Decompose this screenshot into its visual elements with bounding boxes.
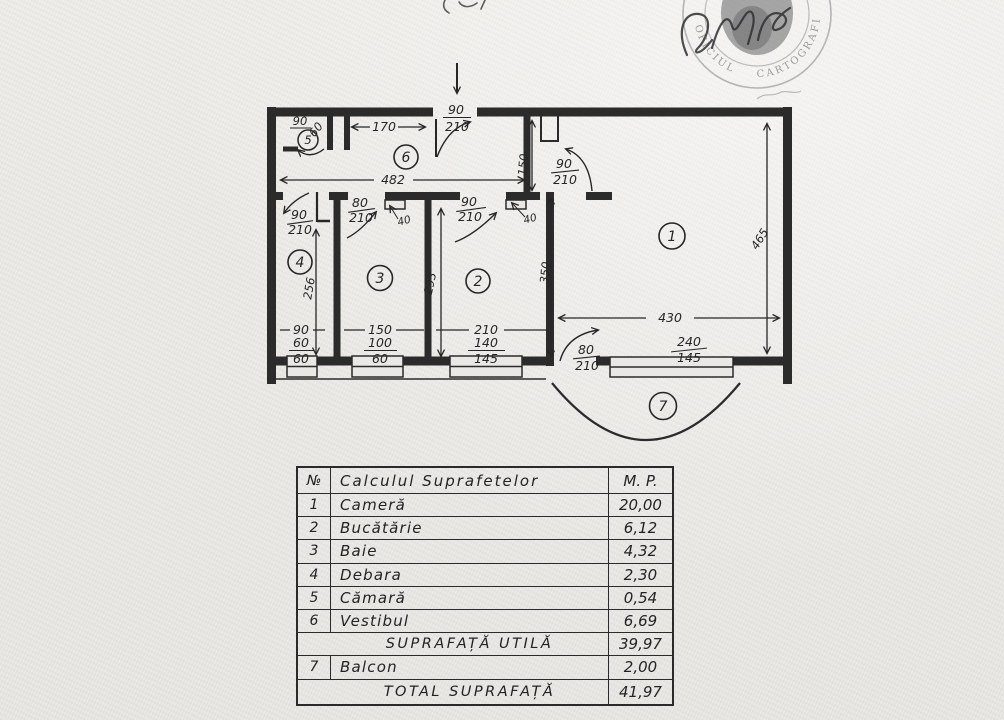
room3-door-width: 80 (352, 195, 368, 210)
col-num (298, 633, 331, 655)
room4-door-height: 210 (288, 222, 312, 237)
room2-door-height: 210 (458, 209, 482, 224)
col-num: 4 (298, 564, 331, 586)
table-row-total: TOTAL SUPRAFAȚĂ 41,97 (298, 679, 672, 704)
wall-pantry-right (330, 112, 347, 150)
col-name: SUPRAFAȚĂ UTILĂ (331, 633, 608, 655)
table-row: 2 Bucătărie 6,12 (298, 516, 672, 539)
dim-overall-482: 482 (381, 172, 405, 187)
vent-shaft (541, 116, 558, 141)
header-num: № (298, 468, 331, 493)
col-value: 41,97 (608, 680, 672, 704)
room3-door-height: 210 (349, 210, 373, 225)
header-unit: M. P. (608, 468, 672, 493)
col-name: TOTAL SUPRAFAȚĂ (331, 680, 608, 704)
table-header-row: № Calculul Suprafetelor M. P. (298, 468, 672, 493)
dim-room2-293: 293 (421, 271, 439, 295)
col-num: 3 (298, 540, 331, 562)
room1-door-width: 90 (556, 156, 572, 171)
room6-number: 6 (402, 150, 411, 166)
col-name: Bucătărie (331, 517, 608, 539)
jamb-step-room3 (385, 200, 405, 209)
room3-parapet-60: 60 (372, 351, 388, 366)
col-num (298, 680, 331, 704)
room1-number: 1 (668, 229, 677, 245)
dim-room1-430: 430 (658, 310, 682, 325)
col-name: Balcon (331, 656, 608, 678)
room2-door-width: 90 (461, 194, 477, 209)
room2-number: 2 (474, 274, 483, 290)
dim-nook-150: 150 (515, 153, 531, 176)
col-value: 6,12 (608, 517, 672, 539)
room4-parapet-60: 60 (293, 351, 309, 366)
room2-window-140: 140 (474, 335, 498, 350)
pantry-width-90: 90 (293, 114, 308, 128)
col-num: 2 (298, 517, 331, 539)
jamb-40-room3: 40 (396, 213, 412, 228)
room4-window-60: 60 (293, 335, 309, 350)
table-row: 4 Debara 2,30 (298, 563, 672, 586)
col-name: Cameră (331, 494, 608, 516)
col-name: Vestibul (331, 610, 608, 632)
balcony-door-width: 80 (578, 342, 594, 357)
col-value: 39,97 (608, 633, 672, 655)
walls (267, 107, 792, 384)
dim-room4-256: 256 (300, 276, 318, 300)
room4-number: 4 (296, 255, 305, 271)
scanned-floorplan-page: OFICIUL CARTOGRAFIE (0, 0, 1004, 720)
windows (287, 356, 733, 377)
entry-door-height: 210 (445, 119, 469, 134)
dim-hall-170: 170 (372, 119, 396, 134)
room7-number: 7 (659, 399, 668, 415)
table-row: 1 Cameră 20,00 (298, 493, 672, 516)
faint-pencil-note (757, 91, 801, 99)
room3-window-100: 100 (368, 335, 392, 350)
room4-door-width: 90 (291, 207, 307, 222)
table-row: 6 Vestibul 6,69 (298, 609, 672, 632)
dim-room1-350: 350 (537, 261, 553, 284)
table-row: 3 Baie 4,32 (298, 539, 672, 562)
room1-door-height: 210 (553, 172, 577, 187)
col-value: 4,32 (608, 540, 672, 562)
col-name: Debara (331, 564, 608, 586)
col-value: 2,30 (608, 564, 672, 586)
jamb-40-room2: 40 (522, 211, 538, 226)
col-name: Cămară (331, 587, 608, 609)
col-value: 20,00 (608, 494, 672, 516)
col-num: 1 (298, 494, 331, 516)
room3-number: 3 (376, 271, 385, 287)
col-value: 0,54 (608, 587, 672, 609)
entry-door-width: 90 (448, 102, 464, 117)
col-num: 5 (298, 587, 331, 609)
table-row: 5 Cămară 0,54 (298, 586, 672, 609)
top-edge-note (444, 0, 485, 13)
balcony-door-height: 210 (575, 358, 599, 373)
room1-window-240: 240 (677, 334, 701, 349)
room5-number: 5 (304, 133, 311, 147)
table-row: 7 Balcon 2,00 (298, 655, 672, 678)
col-name: Baie (331, 540, 608, 562)
dim-room1-465: 465 (748, 226, 772, 252)
official-stamp: OFICIUL CARTOGRAFIE (0, 0, 831, 88)
room1-window-145: 145 (677, 350, 701, 365)
table-row-suprafata-utila: SUPRAFAȚĂ UTILĂ 39,97 (298, 632, 672, 655)
col-value: 6,69 (608, 610, 672, 632)
col-num: 7 (298, 656, 331, 678)
floorplan: 482 170 90 210 150 90 210 90 60 90 210 2… (267, 63, 792, 440)
balcony-outline (552, 383, 740, 440)
col-value: 2,00 (608, 656, 672, 678)
area-table: № Calculul Suprafetelor M. P. 1 Cameră 2… (296, 466, 674, 706)
header-title: Calculul Suprafetelor (331, 468, 608, 493)
room2-parapet-145: 145 (474, 351, 498, 366)
col-num: 6 (298, 610, 331, 632)
